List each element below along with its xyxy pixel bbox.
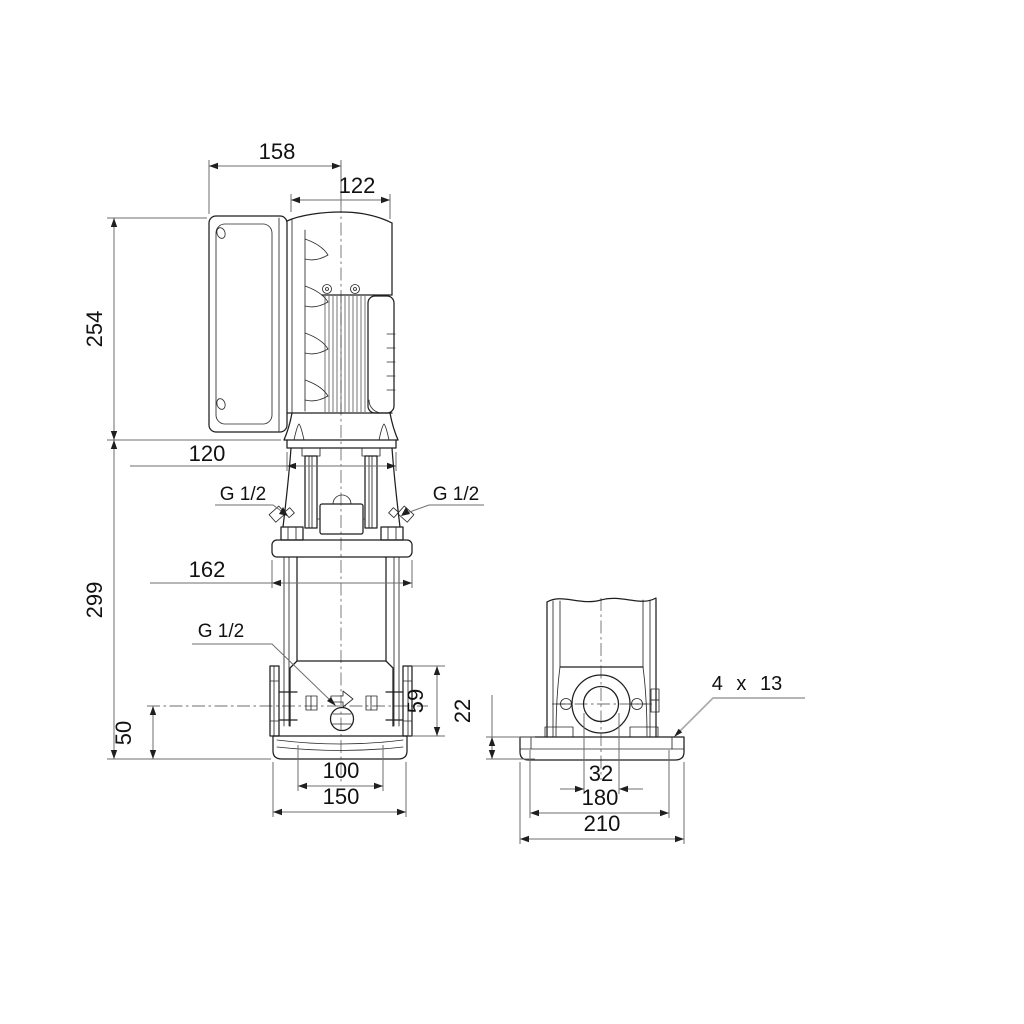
dim-label-299: 299	[82, 582, 107, 619]
dim-label-22: 22	[450, 699, 475, 723]
dim-label-100: 100	[323, 758, 360, 783]
technical-drawing: 158 122 254 299 120 162	[0, 0, 1024, 1024]
label-mounting-holes: 4 x 13	[712, 673, 782, 695]
dim-label-158: 158	[259, 139, 296, 164]
dim-label-120: 120	[189, 441, 226, 466]
canvas-background	[0, 0, 1024, 1024]
dim-label-50: 50	[111, 721, 136, 745]
label-drain: G 1/2	[198, 621, 244, 642]
dim-label-180: 180	[582, 785, 619, 810]
dim-label-122: 122	[339, 173, 376, 198]
dim-label-210: 210	[584, 811, 621, 836]
dim-label-150: 150	[323, 784, 360, 809]
label-vent-right: G 1/2	[433, 484, 479, 505]
dim-label-59: 59	[403, 689, 428, 713]
dim-label-162: 162	[189, 557, 226, 582]
label-vent-left: G 1/2	[220, 484, 266, 505]
dim-label-254: 254	[82, 311, 107, 348]
drawing-page: 158 122 254 299 120 162	[0, 0, 1024, 1024]
dim-label-32: 32	[589, 761, 613, 786]
